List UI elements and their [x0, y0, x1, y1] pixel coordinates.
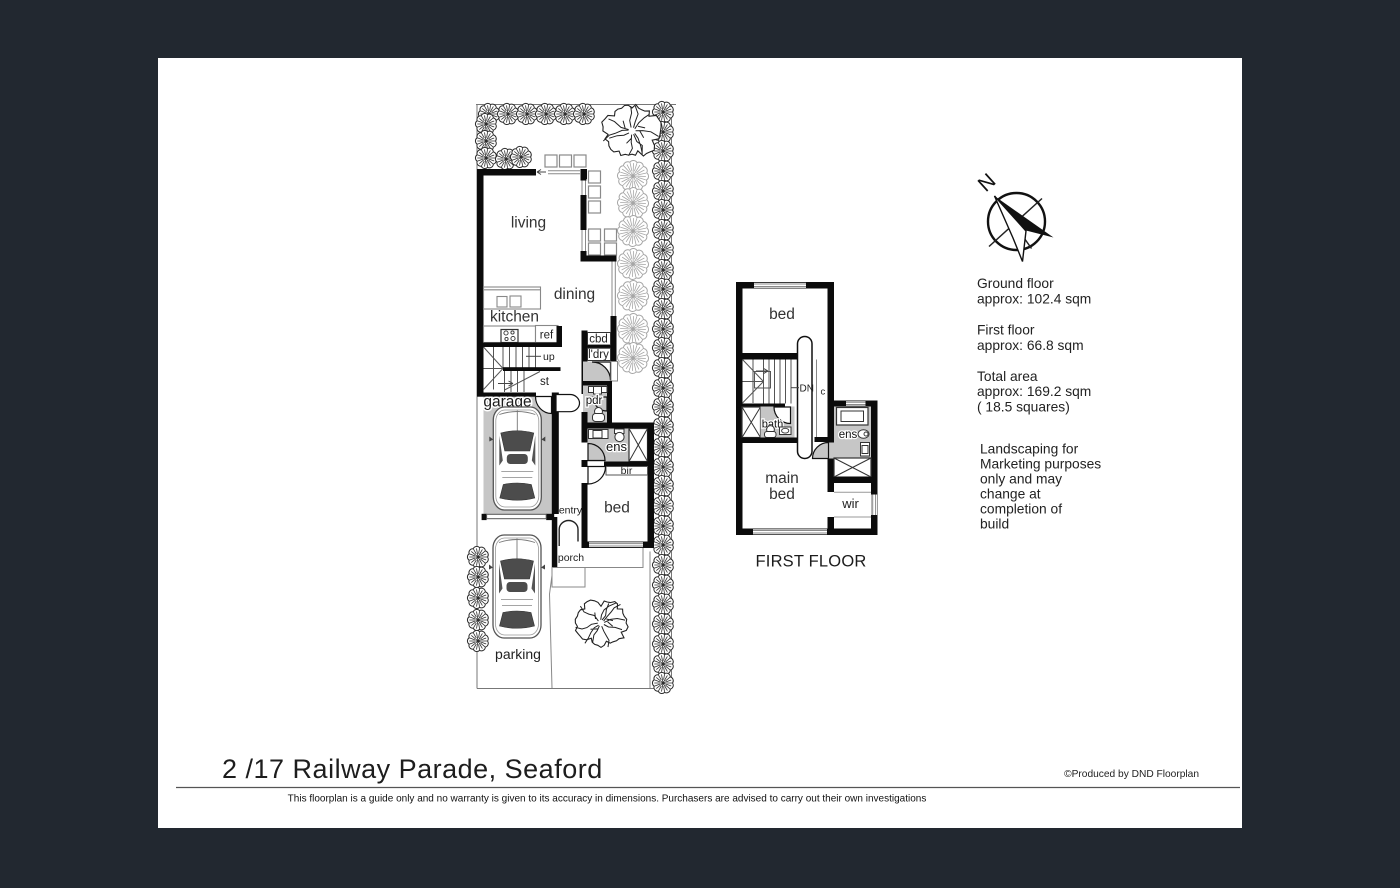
svg-text:approx: 66.8 sqm: approx: 66.8 sqm [977, 338, 1084, 353]
svg-text:ens: ens [606, 439, 627, 454]
svg-text:bed: bed [769, 486, 795, 503]
svg-text:l'dry: l'dry [588, 349, 609, 361]
svg-text:First floor: First floor [977, 323, 1035, 338]
svg-text:bed: bed [604, 500, 630, 517]
svg-text:approx: 102.4 sqm: approx: 102.4 sqm [977, 292, 1091, 307]
svg-text:2 /17 Railway Parade, Seaford: 2 /17 Railway Parade, Seaford [222, 754, 603, 784]
svg-text:( 18.5 squares): ( 18.5 squares) [977, 400, 1070, 415]
svg-text:Ground floor: Ground floor [977, 276, 1054, 291]
svg-text:main: main [765, 470, 799, 487]
svg-text:pdr: pdr [586, 395, 603, 407]
svg-text:completion of: completion of [980, 502, 1062, 517]
svg-text:bir: bir [621, 465, 633, 477]
svg-text:This floorplan is a guide only: This floorplan is a guide only and no wa… [288, 794, 927, 805]
svg-text:change at: change at [980, 487, 1041, 502]
svg-text:st: st [540, 376, 550, 388]
svg-text:©Produced by DND Floorplan: ©Produced by DND Floorplan [1064, 769, 1199, 780]
svg-text:dining: dining [554, 286, 595, 303]
svg-text:bed: bed [769, 306, 795, 323]
svg-text:FIRST FLOOR: FIRST FLOOR [756, 553, 867, 571]
svg-text:up: up [543, 351, 555, 363]
svg-text:approx: 169.2 sqm: approx: 169.2 sqm [977, 384, 1091, 399]
svg-text:cbd: cbd [589, 334, 608, 346]
svg-text:parking: parking [495, 646, 541, 662]
svg-text:ref: ref [540, 330, 554, 342]
svg-text:ens: ens [839, 429, 858, 441]
svg-text:entry: entry [559, 505, 583, 517]
svg-text:Total area: Total area [977, 369, 1038, 384]
svg-text:only and may: only and may [980, 472, 1062, 487]
svg-text:Landscaping for: Landscaping for [980, 442, 1079, 457]
svg-text:kitchen: kitchen [490, 309, 539, 326]
svg-text:build: build [980, 517, 1009, 532]
svg-text:Marketing purposes: Marketing purposes [980, 457, 1101, 472]
svg-text:DN: DN [800, 384, 814, 395]
svg-text:wir: wir [841, 496, 859, 511]
svg-text:porch: porch [558, 552, 584, 564]
svg-text:c: c [821, 387, 826, 398]
svg-text:living: living [511, 215, 546, 232]
